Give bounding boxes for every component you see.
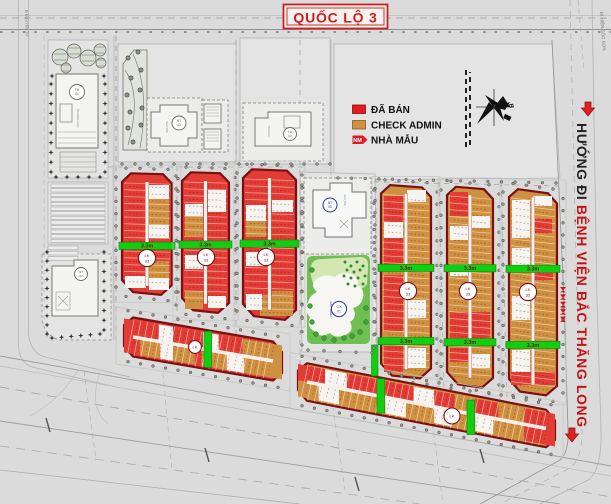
svg-text:3.3m: 3.3m bbox=[527, 343, 539, 349]
svg-text:LK: LK bbox=[450, 414, 455, 419]
svg-text:LK: LK bbox=[145, 253, 150, 258]
svg-text:LK: LK bbox=[204, 252, 209, 257]
svg-text:01: 01 bbox=[75, 92, 79, 96]
svg-text:3.3m: 3.3m bbox=[464, 340, 476, 346]
svg-text:3.3m: 3.3m bbox=[263, 242, 275, 248]
svg-text:LK: LK bbox=[406, 286, 411, 291]
svg-text:33: 33 bbox=[406, 292, 411, 297]
svg-text:02: 02 bbox=[79, 274, 83, 278]
svg-text:3.3m: 3.3m bbox=[141, 244, 153, 250]
svg-text:LK: LK bbox=[526, 287, 531, 292]
svg-text:NHA TRE: NHA TRE bbox=[343, 194, 347, 205]
svg-text:3.3m: 3.3m bbox=[527, 267, 539, 273]
svg-text:Đ NGUYỄN TƯ: Đ NGUYỄN TƯ bbox=[24, 10, 30, 38]
svg-text:TRUONG HOC: TRUONG HOC bbox=[76, 108, 80, 127]
svg-text:03: 03 bbox=[177, 123, 181, 127]
svg-text:33: 33 bbox=[526, 293, 531, 298]
svg-text:01: 01 bbox=[337, 310, 341, 314]
svg-text:HƯỚNG ĐI BỆNH VIỆN BẮC THĂNG L: HƯỚNG ĐI BỆNH VIỆN BẮC THĂNG LONG bbox=[574, 123, 591, 428]
svg-text:NHÀ MẪU: NHÀ MẪU bbox=[371, 134, 418, 147]
svg-text:3.3m: 3.3m bbox=[400, 266, 412, 272]
svg-text:LK: LK bbox=[193, 345, 198, 350]
svg-text:QUỐC LỘ 3: QUỐC LỘ 3 bbox=[293, 9, 377, 26]
svg-text:ĐÃ BÁN: ĐÃ BÁN bbox=[371, 103, 410, 116]
svg-text:33: 33 bbox=[264, 258, 269, 263]
svg-text:NM: NM bbox=[353, 138, 362, 144]
svg-text:TRUONG: TRUONG bbox=[267, 125, 271, 136]
svg-text:CX: CX bbox=[337, 305, 343, 309]
svg-text:LK: LK bbox=[264, 252, 269, 257]
svg-text:CAY XANH: CAY XANH bbox=[329, 301, 333, 316]
svg-text:CHECK ADMIN: CHECK ADMIN bbox=[371, 121, 442, 132]
svg-text:NHA TRE: NHA TRE bbox=[165, 121, 169, 132]
svg-text:3.3m: 3.3m bbox=[464, 266, 476, 272]
svg-text:05: 05 bbox=[328, 205, 332, 209]
svg-text:33: 33 bbox=[466, 292, 471, 297]
svg-text:33: 33 bbox=[145, 259, 150, 264]
svg-text:3.3m: 3.3m bbox=[400, 339, 412, 345]
svg-text:3.3m: 3.3m bbox=[199, 243, 211, 249]
svg-text:33: 33 bbox=[204, 258, 209, 263]
svg-text:LK: LK bbox=[466, 286, 471, 291]
svg-text:02: 02 bbox=[288, 134, 292, 138]
